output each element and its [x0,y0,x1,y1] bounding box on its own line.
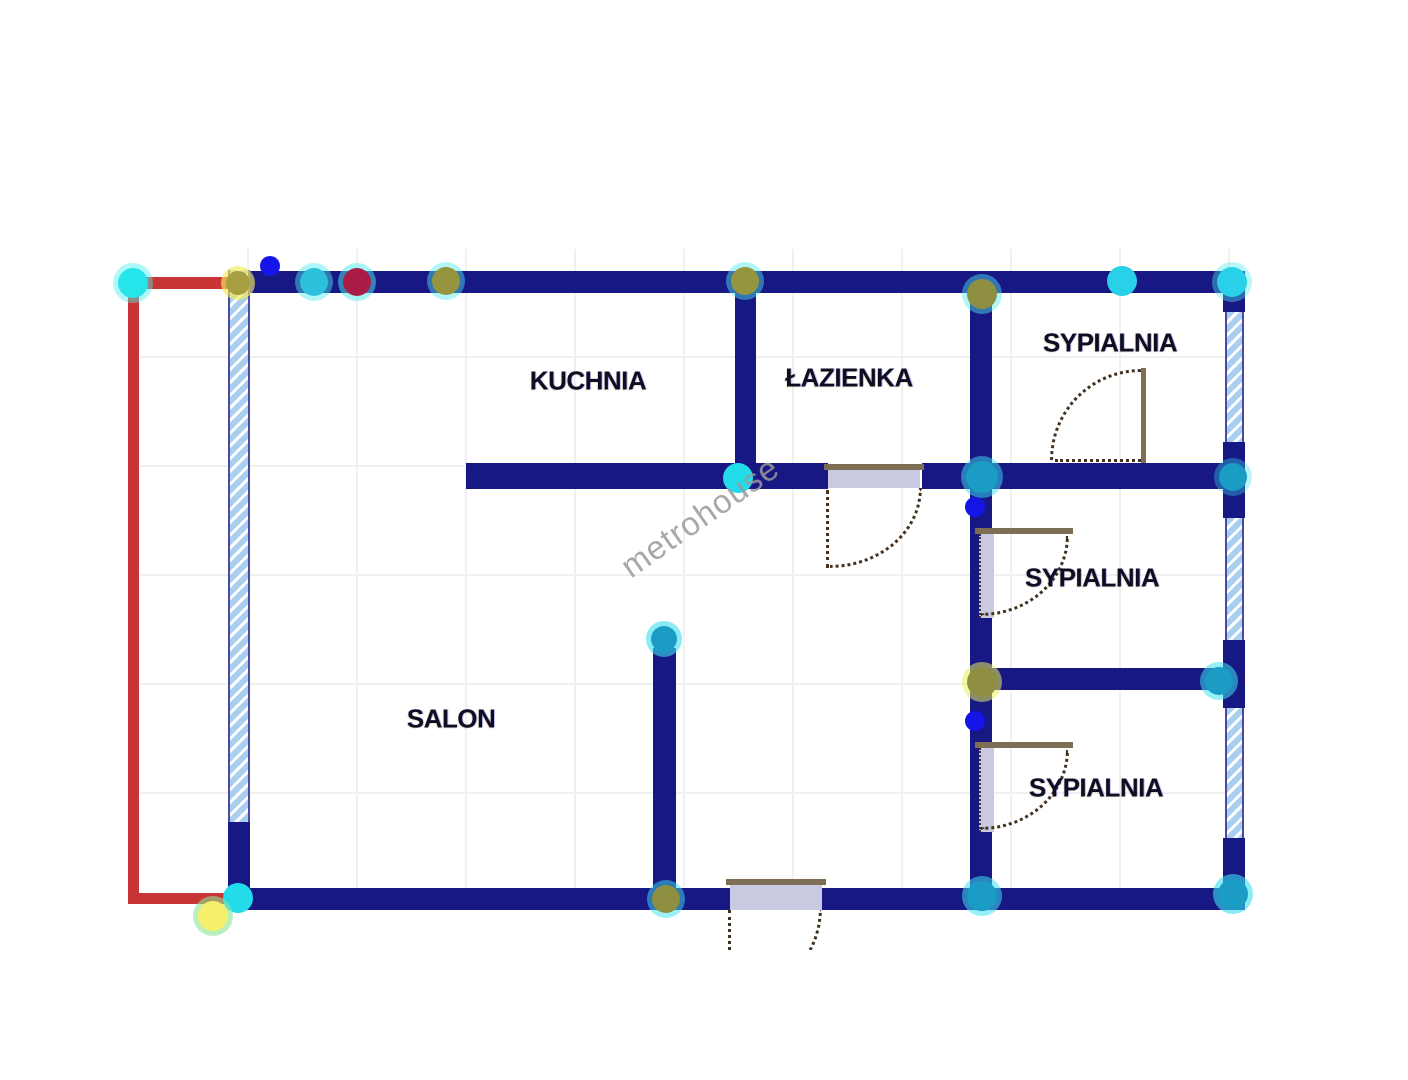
bedroom1-door-leaf [1141,368,1146,463]
red-outline-left [128,277,139,904]
wall-bath-bedroom [970,293,992,465]
room-label-salon: SALON [407,704,496,735]
node-marker-11[interactable] [966,461,998,493]
node-marker-21[interactable] [967,881,997,911]
room-label-lazienka: ŁAZIENKA [785,363,912,394]
node-marker-20[interactable] [198,901,228,931]
window-right-top [1225,312,1244,442]
node-marker-12[interactable] [965,497,985,517]
room-label-sypialnia-top: SYPIALNIA [1043,328,1177,359]
node-marker-16[interactable] [1205,667,1233,695]
room-label-sypialnia-bottom: SYPIALNIA [1029,773,1163,804]
node-marker-13[interactable] [1219,463,1247,491]
node-marker-3[interactable] [300,268,328,296]
bottom-door-arc-clip [726,910,828,950]
node-marker-2[interactable] [260,256,280,276]
floorplan-canvas: KUCHNIAŁAZIENKASYPIALNIASYPIALNIASYPIALN… [0,0,1408,1080]
window-left [228,270,250,822]
window-right-middle [1225,518,1244,640]
bottom-door-leaf [730,885,822,910]
node-marker-5[interactable] [432,267,460,295]
node-marker-14[interactable] [651,626,677,652]
wall-kitchen-salon [466,463,733,489]
wall-left-lower [228,822,250,888]
window-right-bottom [1225,708,1244,838]
room-label-kuchnia: KUCHNIA [530,366,646,397]
wall-bed2-bed3-divider [970,668,1245,690]
node-marker-19[interactable] [223,883,253,913]
bathroom-door-leaf [828,470,920,488]
node-marker-15[interactable] [967,667,997,697]
node-marker-0[interactable] [118,268,148,298]
wall-salon-divider [653,648,676,888]
node-marker-6[interactable] [731,267,759,295]
node-marker-4[interactable] [343,268,371,296]
node-marker-1[interactable] [226,271,250,295]
bottom-door-arc [730,910,822,950]
wall-kitchen-bath [735,293,756,465]
node-marker-7[interactable] [967,279,997,309]
node-marker-17[interactable] [965,711,985,731]
node-marker-8[interactable] [1107,266,1137,296]
node-marker-18[interactable] [652,885,680,913]
room-label-sypialnia-middle: SYPIALNIA [1025,563,1159,594]
node-marker-9[interactable] [1217,267,1247,297]
node-marker-22[interactable] [1218,879,1248,909]
bathroom-door-swing-line [826,490,829,568]
